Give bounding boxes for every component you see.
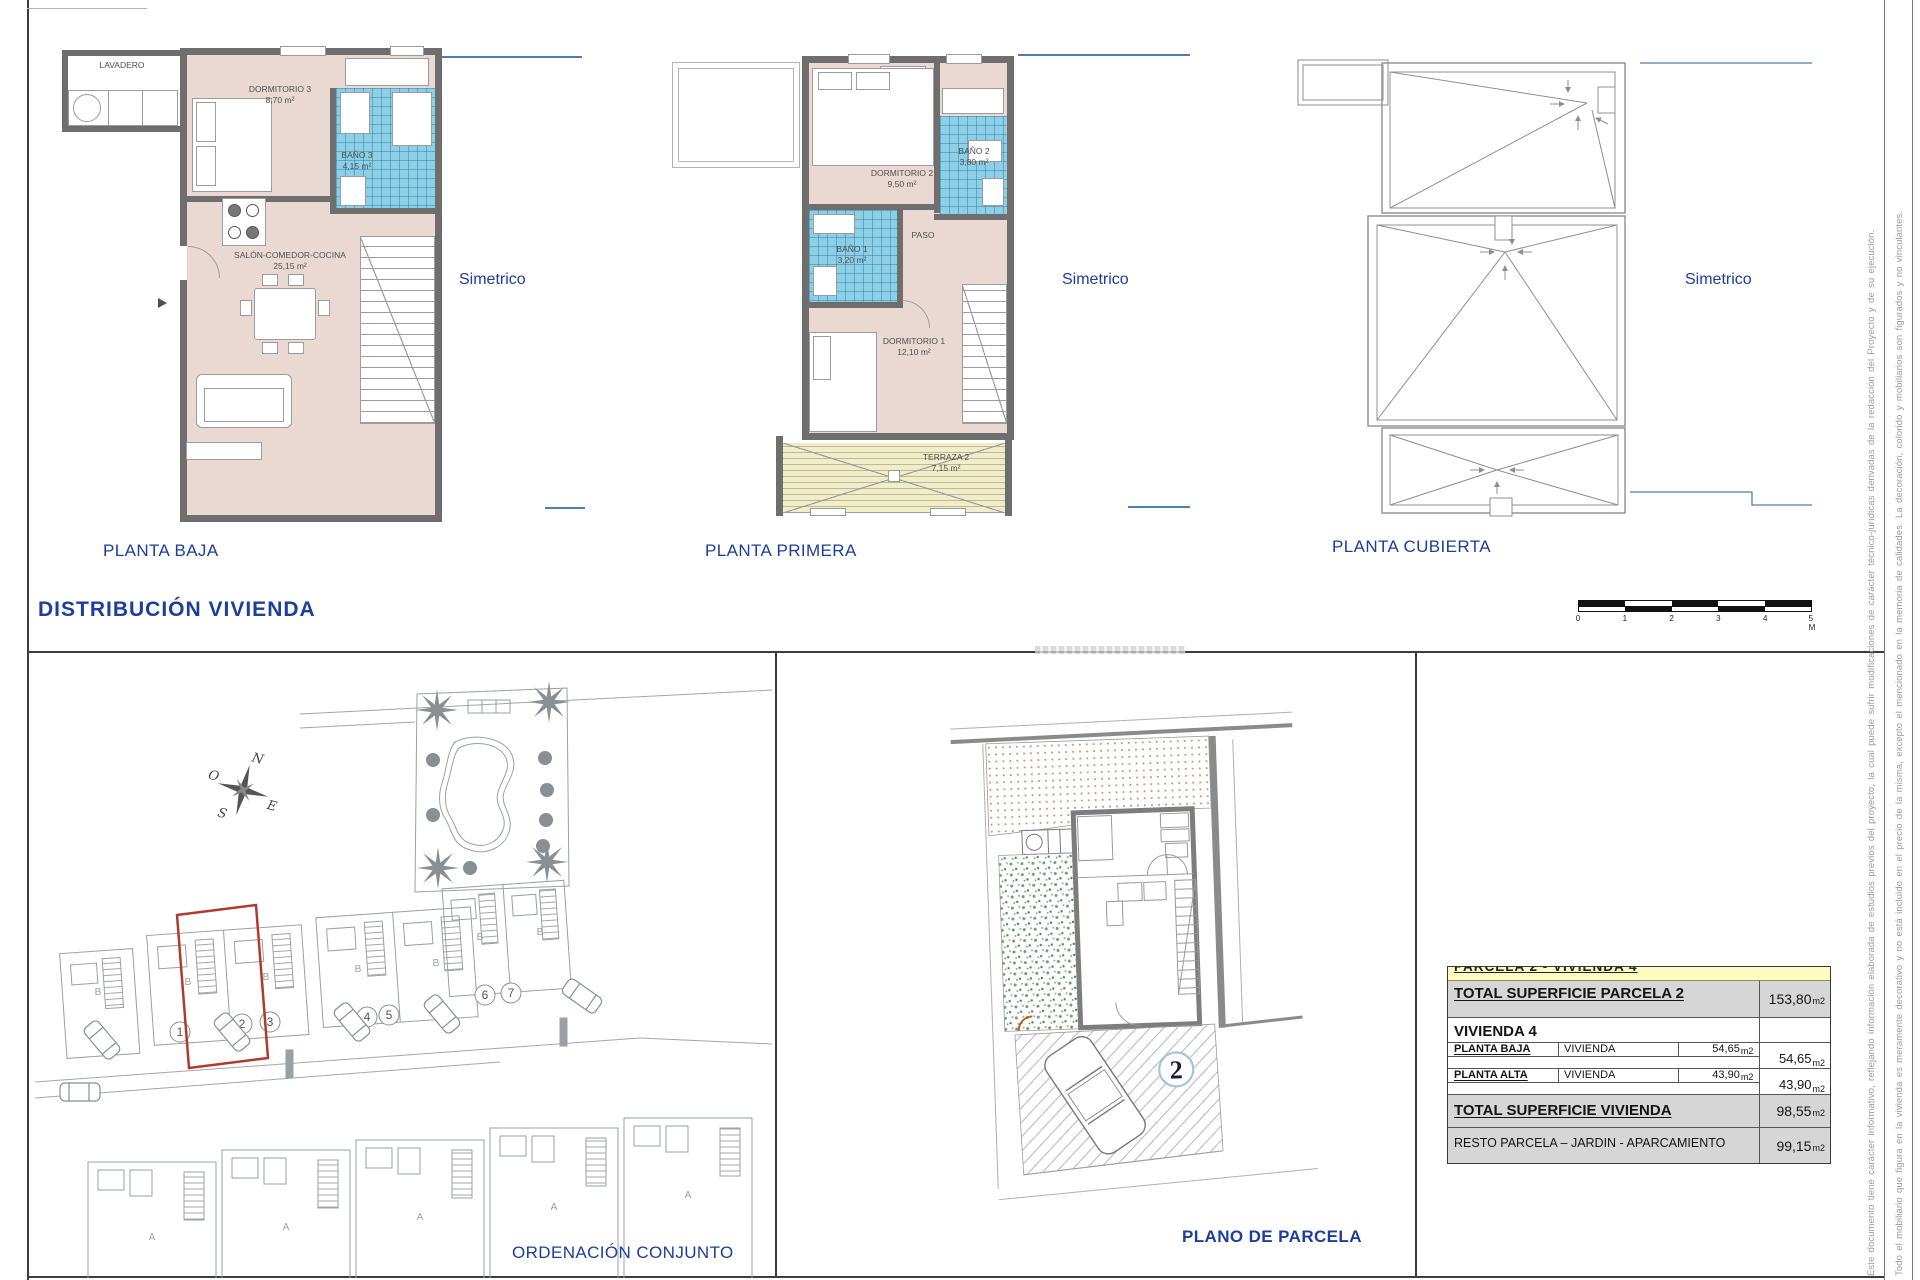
surface-summary-table: PARCELA 2 - VIVIENDA 4 TOTAL SUPERFICIE … [1447, 966, 1831, 1164]
svg-text:A: A [283, 1222, 290, 1233]
parcel-number: 5 [386, 1008, 393, 1022]
pillow [818, 72, 852, 90]
shower [942, 88, 1004, 114]
door-opening [180, 246, 187, 280]
parcel-number: 2 [1169, 1055, 1183, 1084]
margin-disclaimer-line2: Todo el mobiliario que figura en la vivi… [1894, 8, 1905, 1276]
roof-section-bottom [1382, 428, 1625, 516]
closet [345, 58, 429, 86]
railing [810, 508, 846, 516]
site-boundary-line [1018, 54, 1190, 56]
chair [288, 342, 304, 354]
wall [1005, 436, 1012, 516]
parcel-number: 6 [482, 988, 489, 1002]
stair-cut-line [360, 236, 435, 424]
room-name: BAÑO 2 [944, 146, 1004, 157]
row-subtotal: 54,65m2 [1759, 1043, 1830, 1068]
svg-text:B: B [263, 972, 270, 983]
table-row-resto: RESTO PARCELA – JARDIN - APARCAMIENTO 99… [1448, 1127, 1830, 1163]
frame-right-border-outer [1912, 0, 1913, 1280]
chair [318, 300, 330, 316]
tv-cabinet [186, 442, 262, 460]
room-label-bano3: BAÑO 3 4,15 m² [318, 150, 396, 171]
parcel-number: 1 [177, 1025, 184, 1039]
row-label: TOTAL SUPERFICIE VIVIENDA [1448, 1095, 1759, 1127]
room-name: PASO [912, 230, 935, 240]
washing-machine-icon [73, 94, 101, 122]
counter-divider [108, 90, 109, 126]
window [848, 54, 890, 64]
row-sub: PLANTA ALTA VIVIENDA 43,90m2 [1448, 1069, 1759, 1094]
room-name: BAÑO 1 [824, 244, 880, 255]
pillow [196, 102, 216, 142]
sheet-title: DISTRIBUCIÓN VIVIENDA [38, 598, 316, 622]
room-area: 3,80 m² [944, 157, 1004, 168]
wall [802, 433, 1014, 440]
pillow [196, 146, 216, 186]
room-label-lavadero: LAVADERO [70, 60, 174, 71]
scale-tick-label: 4 [1763, 614, 1767, 623]
panel-title-ordenacion: ORDENACIÓN CONJUNTO [512, 1243, 734, 1263]
site-boundary-line [430, 56, 582, 58]
room-label-terraza2: TERRAZA 2 7,15 m² [906, 452, 986, 473]
svg-text:A: A [685, 1190, 692, 1201]
room-name: DORMITORIO 1 [868, 336, 960, 347]
symmetry-note: Simetrico [459, 271, 526, 289]
parcel-number-badge: 2 [1159, 1052, 1194, 1087]
road-lines [35, 690, 772, 1098]
wall [435, 48, 442, 522]
burner [246, 226, 259, 239]
drawing-sheet: LAVADERO DORMITORIO 3 8,70 m² BAÑO 3 4,1… [0, 0, 1920, 1280]
row-value: 99,15m2 [1759, 1128, 1830, 1163]
clipped-header-text: PARCELA 2 - VIVIENDA 4 [1454, 967, 1638, 974]
room-name: LAVADERO [99, 60, 144, 70]
panel-title-plano-parcela: PLANO DE PARCELA [1182, 1227, 1362, 1247]
parcel-number: 7 [508, 986, 515, 1000]
row-value: 98,55m2 [1759, 1095, 1830, 1127]
pool-outline [440, 737, 514, 852]
row-use: VIVIENDA [1558, 1043, 1678, 1056]
stair-cut-line [962, 284, 1007, 424]
roof-section-middle [1368, 216, 1625, 426]
svg-text:A: A [551, 1202, 558, 1213]
room-label-dormitorio3: DORMITORIO 3 8,70 m² [232, 84, 328, 105]
room-label-dormitorio2: DORMITORIO 2 9,50 m² [858, 168, 946, 189]
wall [62, 126, 182, 132]
frame-top-border [27, 8, 147, 9]
room-name: DORMITORIO 3 [232, 84, 328, 95]
unit-letters-a: A A A A A [149, 1190, 692, 1243]
compass-east-label: E [264, 798, 279, 815]
table-clipped-header: PARCELA 2 - VIVIENDA 4 [1448, 967, 1830, 981]
row-subtotal: 43,90m2 [1759, 1069, 1830, 1094]
row-value: 153,80m2 [1759, 981, 1830, 1017]
parcel-number: 4 [364, 1010, 371, 1024]
svg-text:B: B [433, 958, 440, 969]
counter-divider [142, 90, 143, 126]
symmetry-note: Simetrico [1685, 271, 1752, 289]
row-label: VIVIENDA 4 [1448, 1018, 1759, 1042]
room-name: BAÑO 3 [318, 150, 396, 161]
window [390, 46, 424, 56]
room-label-bano2: BAÑO 2 3,80 m² [944, 146, 1004, 167]
kitchen-hob [222, 198, 266, 246]
pillow [813, 336, 831, 380]
row-label: PLANTA BAJA [1448, 1043, 1558, 1056]
plan-title-planta-cubierta: PLANTA CUBIERTA [1332, 537, 1491, 557]
room-name: TERRAZA 2 [906, 452, 986, 463]
garden-area [999, 853, 1085, 1032]
wall [802, 56, 1014, 63]
svg-text:A: A [149, 1232, 156, 1243]
room-area: 12,10 m² [868, 347, 960, 358]
svg-text:B: B [185, 977, 192, 988]
roof-section-top [1382, 63, 1625, 213]
room-label-salon: SALÓN-COMEDOR-COCINA 25,15 m² [228, 250, 352, 271]
row-label: PLANTA ALTA [1448, 1069, 1558, 1082]
room-area: 4,15 m² [318, 161, 396, 172]
railing [930, 508, 966, 516]
window [946, 54, 982, 64]
scale-bar [1578, 600, 1812, 612]
house-footprint [1073, 809, 1200, 1028]
sink [813, 214, 855, 234]
plan-title-planta-baja: PLANTA BAJA [103, 541, 219, 561]
row-use: VIVIENDA [1558, 1069, 1678, 1082]
row-value [1759, 1018, 1830, 1042]
svg-text:A: A [417, 1212, 424, 1223]
room-label-paso: PASO [898, 230, 948, 241]
roof-annex [1298, 60, 1388, 105]
toilet [340, 176, 366, 206]
table-row-planta-baja: PLANTA BAJA VIVIENDA 54,65m2 54,65m2 [1448, 1042, 1830, 1068]
dining-table [254, 288, 316, 340]
roof-outline-below-inner [678, 68, 794, 162]
row-area: 54,65m2 [1678, 1043, 1759, 1056]
pool-inner [445, 743, 507, 845]
parcel-number: 3 [267, 1015, 274, 1029]
svg-text:B: B [477, 932, 484, 943]
table-row-total-parcela: TOTAL SUPERFICIE PARCELA 2 153,80m2 [1448, 981, 1830, 1017]
table-row-total-vivienda: TOTAL SUPERFICIE VIVIENDA 98,55m2 [1448, 1094, 1830, 1127]
chair [288, 274, 304, 286]
chair [240, 300, 252, 316]
symmetry-note: Simetrico [1062, 271, 1129, 289]
row-area: 43,90m2 [1678, 1069, 1759, 1082]
burner [246, 204, 259, 217]
wall [776, 436, 783, 516]
wall [897, 210, 903, 302]
wall [62, 50, 182, 56]
margin-disclaimer-line1: Este documento tiene carácter informativ… [1866, 8, 1877, 1276]
svg-text:B: B [95, 987, 102, 998]
room-area: 3,20 m² [824, 255, 880, 266]
frame-right-border-inner [1884, 0, 1885, 1280]
table-row-vivienda4: VIVIENDA 4 [1448, 1017, 1830, 1042]
compass-north-label: N [249, 750, 265, 768]
parked-cars [60, 977, 604, 1101]
laundry-counter [1022, 829, 1075, 855]
shower [392, 92, 432, 146]
room-area: 9,50 m² [858, 179, 946, 190]
room-name: DORMITORIO 2 [858, 168, 946, 179]
wall [330, 208, 441, 214]
sink [340, 92, 370, 134]
site-plan-drawing: N O E S [27, 652, 775, 1278]
compass-rose-icon: N O E S [198, 741, 290, 835]
row-label: RESTO PARCELA – JARDIN - APARCAMIENTO [1448, 1128, 1759, 1163]
entry-arrow-icon [158, 298, 167, 308]
table-row-planta-alta: PLANTA ALTA VIVIENDA 43,90m2 43,90m2 [1448, 1068, 1830, 1094]
chair [262, 342, 278, 354]
window [280, 46, 326, 56]
pillow [856, 72, 890, 90]
scale-tick-label: 2 [1669, 614, 1673, 623]
chair [262, 274, 278, 286]
svg-text:B: B [355, 964, 362, 975]
wall [809, 302, 903, 308]
room-name: SALÓN-COMEDOR-COCINA [228, 250, 352, 261]
compass-west-label: O [206, 768, 221, 785]
scale-tick-label: 1 [1623, 614, 1627, 623]
row-sub: PLANTA BAJA VIVIENDA 54,65m2 [1448, 1043, 1759, 1068]
site-boundary-line [1128, 506, 1190, 508]
scale-tick-label: 0 [1576, 614, 1580, 623]
scale-tick-label: 3 [1716, 614, 1720, 623]
parcel-plan-drawing: 2 [775, 652, 1415, 1278]
frame-divider-right-panel [1415, 652, 1417, 1278]
plan-title-planta-primera: PLANTA PRIMERA [705, 541, 857, 561]
wall [934, 214, 1014, 220]
room-area: 8,70 m² [232, 95, 328, 106]
burner [228, 226, 241, 239]
burner [228, 204, 241, 217]
scale-tick-label: 5 M [1809, 614, 1816, 632]
svg-text:B: B [537, 927, 544, 938]
compass-south-label: S [216, 806, 229, 823]
wall [180, 515, 442, 522]
terrace-post [888, 470, 900, 482]
toilet [813, 266, 837, 296]
room-label-bano1: BAÑO 1 3,20 m² [824, 244, 880, 265]
row-label: TOTAL SUPERFICIE PARCELA 2 [1448, 981, 1759, 1017]
wall [1007, 56, 1014, 440]
toilet [982, 178, 1004, 206]
site-boundary-line [545, 507, 585, 509]
room-area: 25,15 m² [228, 261, 352, 272]
graphic-scale-bar: 0 1 2 3 4 5 M [1578, 600, 1812, 626]
sofa-seat [204, 388, 284, 422]
room-area: 7,15 m² [906, 463, 986, 474]
wall [802, 56, 809, 440]
room-label-dormitorio1: DORMITORIO 1 12,10 m² [868, 336, 960, 357]
